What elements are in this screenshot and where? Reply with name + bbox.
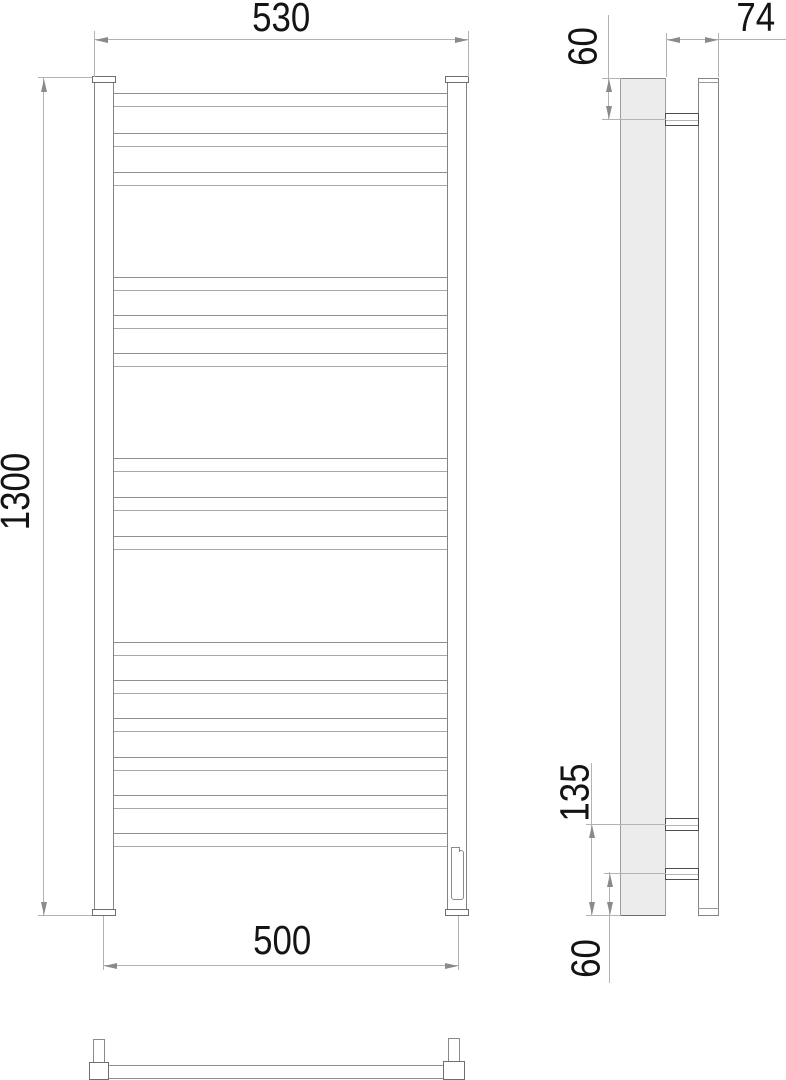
front-tube [113,458,448,472]
front-tube [113,642,448,656]
dim-530-arrow-left [95,37,108,43]
bottom-mount-bracket [665,868,699,880]
bottom-view-left-block [89,1062,109,1080]
dim-500-ext-right [458,916,459,970]
front-tube [113,497,448,511]
stand-top-notch [698,82,719,83]
bottom-view-left-stub [93,1039,105,1064]
front-right-post [447,82,467,910]
side-wall-stand [698,78,719,916]
front-tube [113,536,448,550]
dim-530-label: 530 [181,0,381,42]
dim-60b-ext-bracket [604,873,666,874]
heating-element-box [451,850,464,900]
front-tube [113,277,448,291]
front-tube [113,172,448,186]
dim-1300-arrow-up [41,79,47,92]
dim-1300-ext-top [38,77,92,78]
front-tube [113,757,448,771]
front-left-post-foot [92,909,116,916]
dim-1300-label: 1300 [0,416,91,566]
front-right-post-foot [445,909,469,916]
bottom-view-right-stub [448,1038,460,1063]
drawing-sheet: 530 1300 500 74 [0,0,786,1080]
dim-74-label: 74 [656,0,786,42]
dim-530-arrow-right [455,37,468,43]
dim-60t-label: 60 [508,0,658,121]
dim-500-arrow-left [104,963,117,969]
dim-530-ext-right [468,31,469,77]
front-tube [113,795,448,809]
dim-1300-ext-bottom [38,915,92,916]
dim-500-label: 500 [182,915,382,965]
dim-135-label: 135 [500,717,650,867]
front-tube [113,315,448,329]
heating-element-tab [451,847,460,852]
dim-500-line [103,965,458,966]
front-left-post [94,82,114,910]
front-left-post-cap [92,76,116,83]
dim-500-arrow-right [445,963,458,969]
dim-60b-label: 60 [511,883,661,1033]
front-tube [113,353,448,367]
lower-connection-stub [665,818,699,831]
front-right-post-cap [445,76,469,83]
bottom-view-tube [108,1065,444,1079]
front-tube [113,133,448,147]
front-tube [113,680,448,694]
front-tube [113,718,448,732]
dim-1300-arrow-down [41,902,47,915]
stand-bottom-notch [698,908,719,909]
front-tube [113,93,448,107]
bottom-view-right-block [443,1061,465,1080]
front-tube [113,833,448,847]
top-mount-bracket [665,113,699,126]
